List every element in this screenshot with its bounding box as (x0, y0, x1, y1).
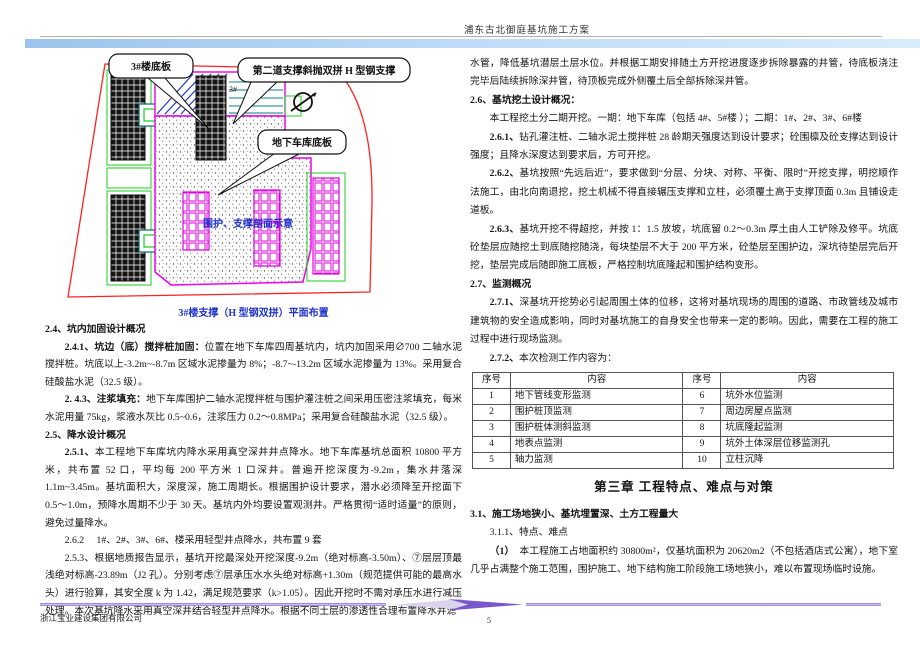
cell: 周边房屋点监测 (721, 404, 894, 420)
building-3-label: 3# (229, 85, 237, 94)
page-header-title: 浦东古北御庭基坑施工方案 (464, 22, 590, 36)
para-text: 本工程地下车库坑内降水采用真空深井井点降水。地下车库基坑总面积 10800 平方… (45, 447, 462, 528)
page-number: 5 (487, 616, 491, 625)
cell: 坑外水位监测 (721, 388, 894, 404)
para-text: 钻孔灌注桩、二轴水泥土搅拌桩 28 龄期天强度达到设计要求；砼围檩及砼支撑达到设… (470, 132, 898, 161)
cell: 10 (683, 452, 721, 468)
para-2-6-intro: 本工程挖土分二期开挖。一期：地下车库（包括 4#、5#楼 ）；二期：1#、2#、… (470, 110, 898, 128)
footer-arrow-icon (390, 597, 528, 612)
col-header: 序号 (683, 372, 721, 388)
cell: 9 (683, 436, 721, 452)
para-lead: 2.5.1、 (65, 447, 95, 458)
cell: 5 (473, 452, 511, 468)
para-2-4-3: 2. 4.3、注浆填充：地下车库围护二轴水泥搅拌桩与围护灌注桩之间采用压密注浆填… (45, 391, 462, 426)
para-2-6-2: 2.6.2、基坑按照“先远后近”，要求做到“分层、分块、对称、平衡、限时”开挖支… (470, 165, 898, 220)
cell: 坑外土体深层位移监测孔 (721, 436, 894, 452)
para-lead: 2.6.3、 (490, 224, 520, 235)
para-text: 本工程施工占地面积约 30800m²，仅基坑面积为 20620m2（不包括酒店式… (470, 546, 898, 575)
footer-rule-right (526, 603, 881, 606)
table-header-row: 序号 内容 序号 内容 (473, 372, 894, 388)
para-lead: 2. 4.3、注浆填充： (65, 394, 146, 405)
building-6 (313, 178, 339, 274)
cell: 围护桩体测斜监测 (510, 420, 683, 436)
heading-2-5: 2.5、降水设计概况 (45, 427, 462, 445)
para-lead: 2.4.1、坑边（底）搅拌桩加固： (65, 342, 205, 353)
para-lead: 2.6.2、 (490, 168, 520, 179)
cell: 轴力监测 (510, 452, 683, 468)
header-rule (40, 36, 882, 37)
para-2-7-2: 2.7.2、本次检测工作内容为： (470, 350, 898, 368)
para-2-5-1: 2.5.1、本工程地下车库坑内降水采用真空深井井点降水。地下车库基坑总面积 10… (45, 444, 462, 532)
cell: 4 (473, 436, 511, 452)
para-2-6-1: 2.6.1、钻孔灌注桩、二轴水泥土搅拌桩 28 龄期天强度达到设计要求；砼围檩及… (470, 129, 898, 166)
left-column: 3# 3#楼底板 (45, 52, 462, 620)
para-text: 基坑开挖不得超挖，并按 1：1.5 放坡，坑底留 0.2～0.3m 厚土由人工铲… (470, 224, 898, 272)
col-header: 内容 (510, 372, 683, 388)
heading-2-4: 2.4、坑内加固设计概况 (45, 321, 462, 339)
para-text: 本次检测工作内容为： (519, 353, 617, 364)
diagram-caption: 3#楼支撑（H 型钢双拼）平面布置 (45, 304, 462, 319)
chapter-heading: 第三章 工程特点、难点与对策 (470, 476, 898, 495)
para-lead: 2.7.2、 (490, 353, 519, 364)
para-2-4-1: 2.4.1、坑边（底）搅拌桩加固：位置在地下车库四周基坑内，坑内加固采用∅700… (45, 339, 462, 392)
table-row: 5 轴力监测 10 立柱沉降 (473, 452, 894, 468)
monitoring-table: 序号 内容 序号 内容 1 地下管线变形监测 6 坑外水位监测 2 围护桩顶监测… (472, 372, 894, 469)
para-lead: 2.7.1、 (490, 297, 520, 308)
document-page: 浦东古北御庭基坑施工方案 (0, 0, 920, 651)
footer-company-name: 浙江宝业建设集团有限公司 (40, 612, 142, 624)
right-column: 水管，降低基坑潜层土层水位。并根据工期安排随土方开挖进度逐步拆除暴露的井管，待底… (470, 52, 898, 620)
col-header: 序号 (473, 372, 511, 388)
cell: 1 (473, 388, 511, 404)
building-3 (196, 76, 226, 160)
cell: 7 (683, 404, 721, 420)
svg-text:地下车库底板: 地下车库底板 (272, 136, 333, 149)
para-2-7-1: 2.7.1、深基坑开挖势必引起周围土体的位移，这将对基坑现场的周围的道路、市政管… (470, 294, 898, 349)
table-row: 2 围护桩顶监测 7 周边房屋点监测 (473, 404, 894, 420)
svg-text:第二道支撑斜抛双拼 H 型钢支撑: 第二道支撑斜抛双拼 H 型钢支撑 (253, 64, 396, 77)
table-row: 4 地表点监测 9 坑外土体深层位移监测孔 (473, 436, 894, 452)
para-lead: 2.5.3、 (65, 553, 95, 564)
para-continuation: 水管，降低基坑潜层土层水位。并根据工期安排随土方开挖进度逐步拆除暴露的井管，待底… (470, 55, 898, 92)
para-lead: （1） (490, 546, 520, 557)
header-accent-bar (25, 39, 920, 48)
para-lead: 2.6.1、 (490, 132, 519, 143)
cell: 3 (473, 420, 511, 436)
para-2-6-2-note: 2.6.2 1#、2#、3#、6#、楼采用轻型井点降水，共布置 9 套 (45, 532, 462, 550)
cell: 地下管线变形监测 (510, 388, 683, 404)
section-label: 围护、支撑剖面示意 (203, 217, 293, 230)
cell: 坑底隆起监测 (721, 420, 894, 436)
footer-rule-left (40, 603, 386, 606)
col-header: 内容 (721, 372, 894, 388)
cell: 2 (473, 404, 511, 420)
table-row: 1 地下管线变形监测 6 坑外水位监测 (473, 388, 894, 404)
para-3-1-point1: （1） 本工程施工占地面积约 30800m²，仅基坑面积为 20620m2（不包… (470, 543, 898, 580)
para-text: 基坑按照“先远后近”，要求做到“分层、分块、对称、平衡、限时”开挖支撑，明挖顺作… (470, 168, 898, 216)
para-3-1-1: 3.1.1、特点、难点 (470, 524, 898, 542)
left-text-block: 2.4、坑内加固设计概况 2.4.1、坑边（底）搅拌桩加固：位置在地下车库四周基… (45, 321, 462, 620)
para-2-6-3: 2.6.3、基坑开挖不得超挖，并按 1：1.5 放坡，坑底留 0.2～0.3m … (470, 221, 898, 276)
cell: 6 (683, 388, 721, 404)
heading-2-6: 2.6、基坑挖土设计概况： (470, 92, 898, 110)
cell: 立柱沉降 (721, 452, 894, 468)
para-text: 深基坑开挖势必引起周围土体的位移，这将对基坑现场的周围的道路、市政管线及城市建筑… (470, 297, 898, 345)
heading-3-1: 3.1、施工场地狭小、基坑埋置深、土方工程量大 (470, 506, 898, 524)
table-row: 3 围护桩体测斜监测 8 坑底隆起监测 (473, 420, 894, 436)
site-plan-diagram: 3# 3#楼底板 (53, 52, 463, 298)
cell: 8 (683, 420, 721, 436)
svg-text:3#楼底板: 3#楼底板 (131, 60, 172, 73)
cell: 地表点监测 (510, 436, 683, 452)
cell: 围护桩顶监测 (510, 404, 683, 420)
heading-2-7: 2.7、监测概况 (470, 276, 898, 294)
two-column-body: 3# 3#楼底板 (45, 52, 898, 620)
